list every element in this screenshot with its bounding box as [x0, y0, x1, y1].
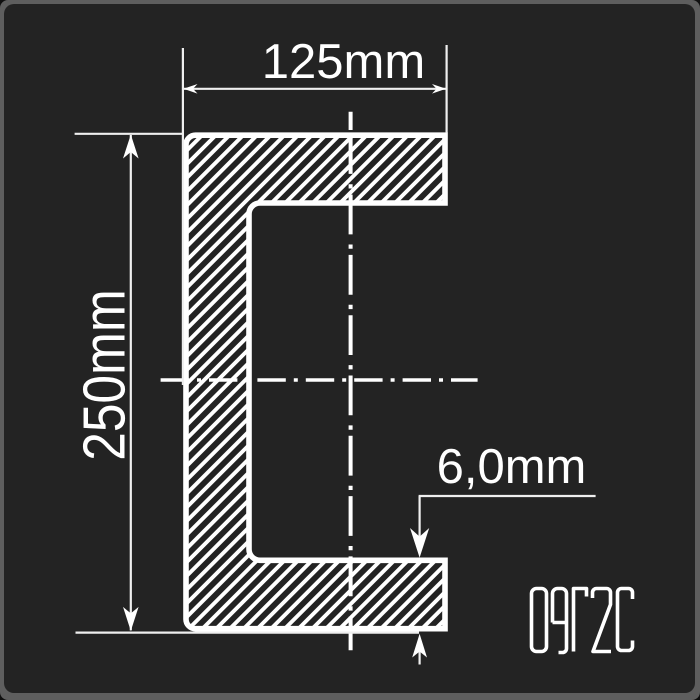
svg-text:250mm: 250mm — [70, 289, 137, 461]
svg-text:125mm: 125mm — [262, 35, 425, 89]
svg-text:6,0mm: 6,0mm — [437, 440, 587, 494]
